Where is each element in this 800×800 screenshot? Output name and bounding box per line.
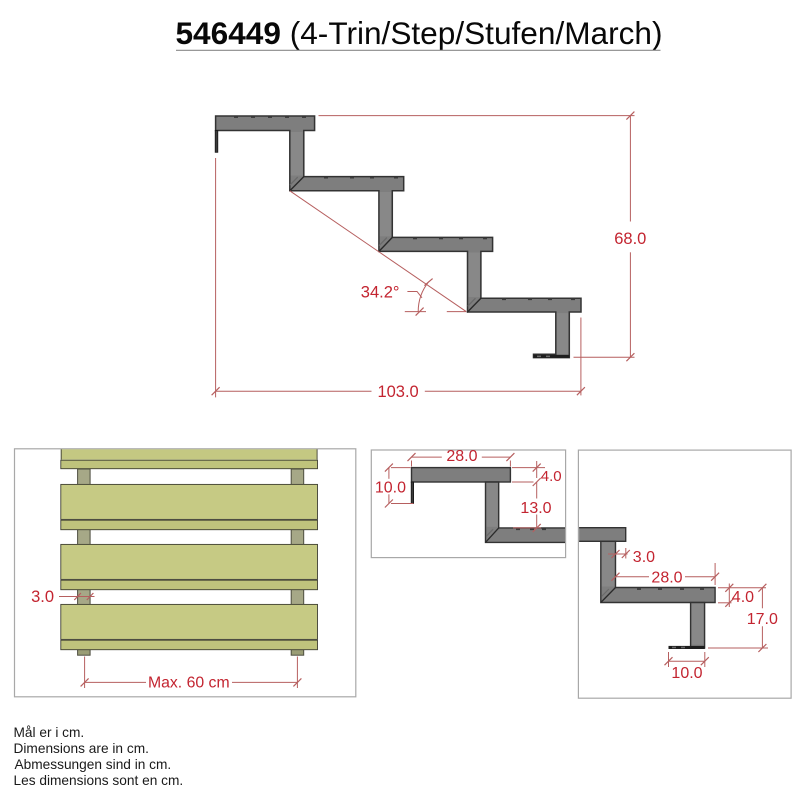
svg-text:68.0: 68.0 [614, 230, 646, 248]
svg-text:28.0: 28.0 [446, 448, 477, 465]
svg-text:13.0: 13.0 [520, 500, 551, 517]
svg-text:103.0: 103.0 [377, 383, 418, 401]
svg-text:17.0: 17.0 [747, 611, 778, 628]
svg-text:546449 (4-Trin/Step/Stufen/Mar: 546449 (4-Trin/Step/Stufen/March) [175, 15, 662, 51]
svg-text:3.0: 3.0 [31, 588, 54, 606]
svg-text:Mål er i cm.: Mål er i cm. [14, 725, 85, 740]
svg-text:28.0: 28.0 [651, 570, 682, 587]
svg-text:34.2°: 34.2° [361, 284, 400, 302]
svg-text:3.0: 3.0 [633, 549, 655, 566]
svg-text:Dimensions are in cm.: Dimensions are in cm. [14, 741, 149, 756]
svg-text:4.0: 4.0 [541, 468, 562, 485]
svg-text:Abmessungen sind in cm.: Abmessungen sind in cm. [15, 757, 172, 772]
svg-text:10.0: 10.0 [671, 665, 702, 682]
svg-text:10.0: 10.0 [375, 480, 406, 497]
svg-text:Max. 60 cm: Max. 60 cm [148, 674, 230, 691]
svg-text:Les dimensions sont en cm.: Les dimensions sont en cm. [14, 773, 184, 788]
svg-text:4.0: 4.0 [732, 589, 754, 606]
